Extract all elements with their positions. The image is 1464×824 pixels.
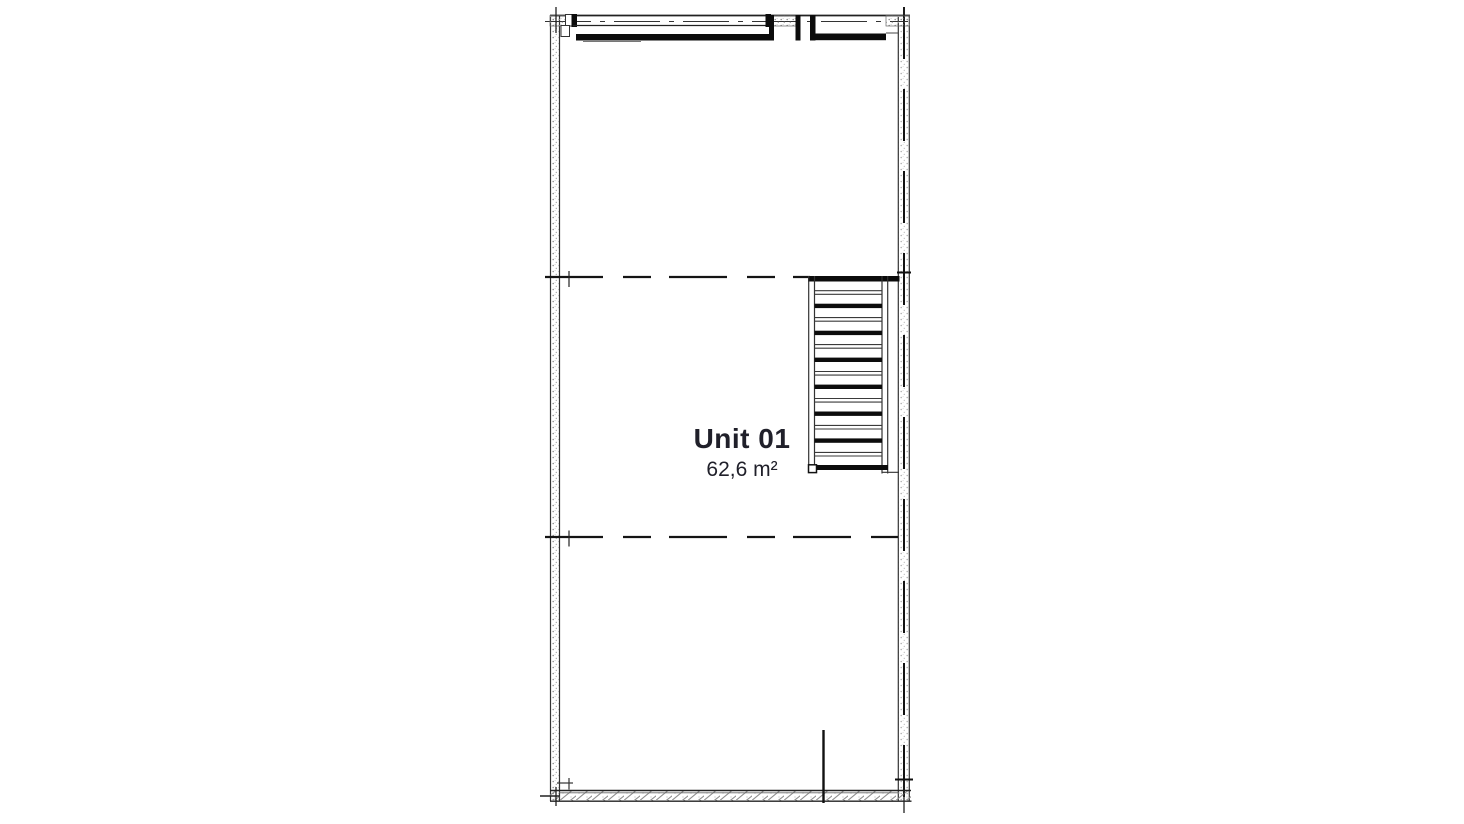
stair-riser [815, 385, 883, 389]
stair-riser [815, 438, 883, 442]
stair-risers [815, 304, 883, 443]
pier-left-jamb [769, 15, 774, 41]
top-wall [545, 14, 910, 42]
unit-area-label: 62,6 m² [706, 458, 777, 481]
right-wall [898, 7, 910, 813]
axis-marks [540, 7, 913, 813]
floor-plan-canvas: Unit 01 62,6 m² [0, 0, 1464, 824]
stair-riser [815, 331, 883, 335]
stair-riser [815, 304, 883, 308]
window-2-sill [812, 34, 886, 41]
left-jamb-box-lower [561, 26, 570, 37]
corner-block-right [886, 16, 910, 27]
left-wall [550, 16, 560, 802]
stair-foot-block [809, 465, 817, 473]
left-jamb-box-upper [566, 15, 573, 27]
stair-treads [815, 291, 883, 456]
window-2 [810, 15, 886, 41]
stair-riser [815, 412, 883, 416]
unit-label: Unit 01 [694, 423, 791, 454]
staircase [808, 276, 900, 474]
stair-top-edge [808, 276, 900, 282]
window-1-sill [576, 34, 769, 41]
left-wall-hatch [550, 16, 560, 802]
window-1 [572, 14, 772, 42]
pier-right-jamb [796, 15, 801, 41]
dashed-separators [545, 271, 898, 547]
bottom-wall [550, 791, 912, 802]
stair-riser [815, 358, 883, 362]
wall-pier [769, 15, 801, 41]
stair-bottom-edge [816, 465, 888, 470]
floor-plan-drawing: Unit 01 62,6 m² [0, 0, 1464, 824]
